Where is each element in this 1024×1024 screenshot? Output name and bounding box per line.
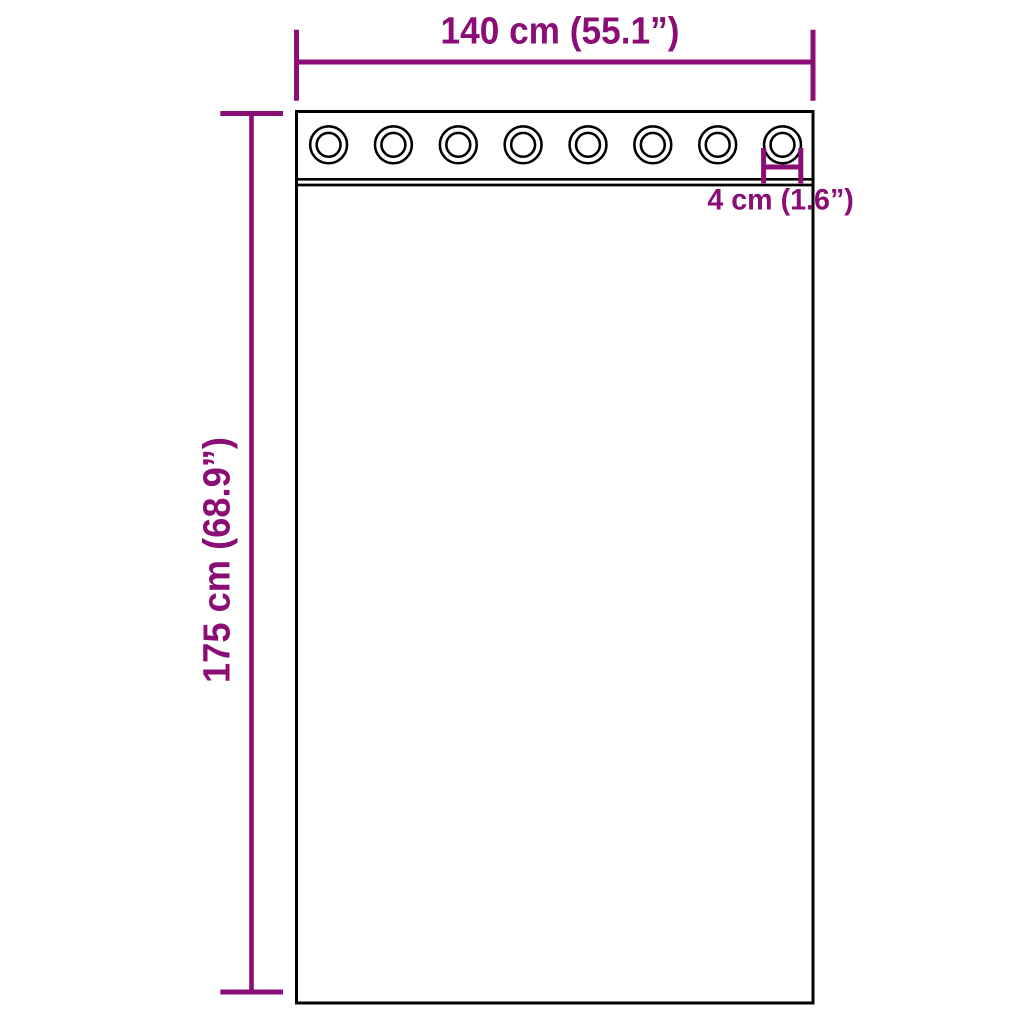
svg-text:140 cm (55.1”): 140 cm (55.1”) [441,11,680,53]
svg-text:175 cm (68.9”): 175 cm (68.9”) [197,437,239,683]
svg-text:4 cm (1.6”): 4 cm (1.6”) [707,184,854,217]
